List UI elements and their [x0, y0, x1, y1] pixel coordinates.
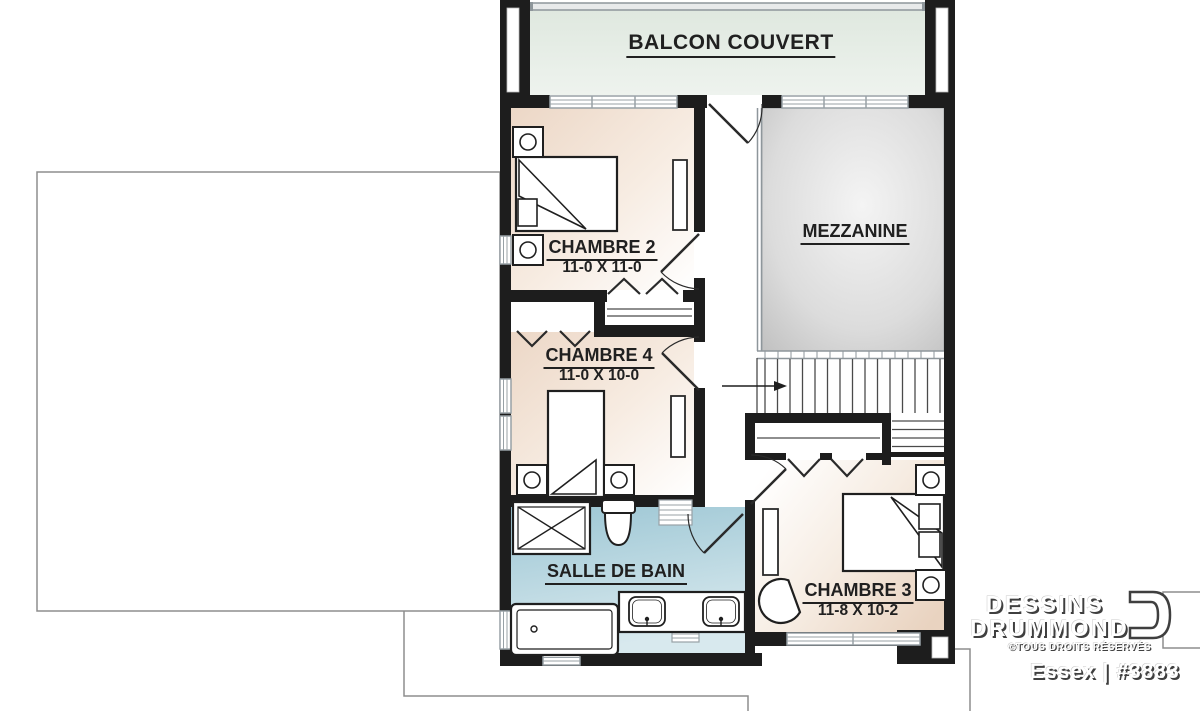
door-leaf-chambre2 [673, 160, 687, 230]
pillar-window-left [507, 8, 519, 92]
plan-reference: Essex | #3883 [1030, 660, 1180, 684]
window-chambre4-left-2 [500, 416, 511, 450]
nightstand [513, 235, 543, 265]
nightstand [604, 465, 634, 495]
door-leaf-chambre4 [671, 396, 685, 457]
pillow [919, 504, 940, 529]
window-top-right [782, 96, 908, 108]
window-chambre2-left [500, 236, 511, 264]
nightstand [513, 127, 543, 157]
stair-direction-arrow [722, 381, 787, 391]
bed-chambre2 [516, 157, 617, 231]
room-label-chambre2: CHAMBRE 2 [546, 237, 657, 261]
room-dims-chambre2: 11-0 X 11-0 [562, 259, 641, 277]
nightstand [916, 570, 946, 600]
stair-closet-wall [745, 413, 891, 423]
room-dims-chambre3: 11-8 X 10-2 [818, 602, 898, 620]
window-top-left [550, 96, 677, 108]
logo-line-drummond: DRUMMOND [970, 616, 1120, 640]
window-chambre3-bottom [787, 633, 920, 645]
door-leaf-chambre3 [763, 509, 778, 575]
room-label-chambre4: CHAMBRE 4 [543, 345, 654, 369]
room-label-salle-de-bain: SALLE DE BAIN [545, 561, 687, 585]
window-chambre4-left-1 [500, 379, 511, 413]
logo-line-dessins: DESSINS [970, 592, 1120, 616]
vanity-double-sink [619, 592, 745, 632]
drummond-logo-text: DESSINS DRUMMOND [970, 592, 1120, 640]
balcony-railing [528, 2, 927, 11]
bathtub [511, 604, 618, 655]
door-balcony [709, 104, 762, 143]
bed-chambre3 [843, 494, 944, 571]
corner-window-slot [932, 637, 948, 658]
exterior-wall-right [944, 95, 955, 635]
shower [513, 502, 590, 554]
room-dims-chambre4: 11-0 X 10-0 [559, 367, 639, 385]
floorplan-page: BALCON COUVERT CHAMBRE 2 11-0 X 11-0 MEZ… [0, 0, 1200, 711]
nightstand [916, 465, 946, 495]
hall-wall-upper [694, 108, 705, 232]
room-label-balcon: BALCON COUVERT [626, 31, 835, 58]
drummond-d-mark-icon [1124, 588, 1176, 642]
copyright-notice: ©TOUS DROITS RÉSERVÉS [1008, 642, 1151, 653]
nightstand [517, 465, 547, 495]
roof-outline-left [37, 172, 500, 611]
room-label-mezzanine: MEZZANINE [801, 221, 910, 245]
linen-shelves-bathroom [659, 500, 692, 525]
window-bathroom-left [500, 611, 511, 649]
pillar-window-right [936, 8, 948, 92]
bed-chambre4 [548, 391, 604, 497]
room-label-chambre3: CHAMBRE 3 [802, 580, 913, 604]
pillow [919, 532, 940, 557]
drummond-logo: DESSINS DRUMMOND ©TOUS DROITS RÉSERVÉS E… [948, 584, 1200, 711]
pillow [518, 199, 537, 226]
